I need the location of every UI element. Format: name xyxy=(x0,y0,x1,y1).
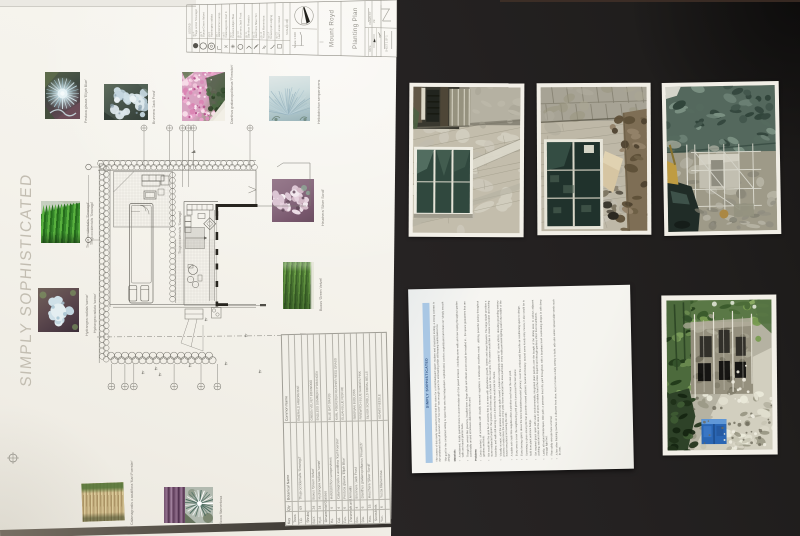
svg-text:Mount Royd: Mount Royd xyxy=(329,9,336,47)
svg-text:SCALE 1:100: SCALE 1:100 xyxy=(285,19,289,35)
svg-text:Planting Plan: Planting Plan xyxy=(352,7,359,49)
svg-text:qty 14: qty 14 xyxy=(268,31,271,38)
svg-text:qty 11: qty 11 xyxy=(245,31,248,38)
svg-text:qty 7: qty 7 xyxy=(215,31,218,37)
svg-text:qty 13: qty 13 xyxy=(260,31,263,38)
svg-text:DRAWN BY: DRAWN BY xyxy=(369,11,372,25)
svg-text:qty 6: qty 6 xyxy=(208,31,211,37)
svg-text:LEGEND: LEGEND xyxy=(188,23,192,34)
svg-text:qty 8: qty 8 xyxy=(222,32,225,38)
svg-text:qty 4: qty 4 xyxy=(192,31,195,37)
svg-text:qty 5: qty 5 xyxy=(200,31,203,37)
svg-text:SHEET 1 OF 1: SHEET 1 OF 1 xyxy=(386,35,389,52)
svg-text:qty 10: qty 10 xyxy=(237,31,240,38)
svg-text:JM: JM xyxy=(373,20,376,23)
svg-text:qty 12: qty 12 xyxy=(252,31,255,38)
svg-text:DATE: DATE xyxy=(369,45,372,52)
svg-text:qty 15: qty 15 xyxy=(276,32,279,39)
svg-text:qty 9: qty 9 xyxy=(230,32,233,38)
